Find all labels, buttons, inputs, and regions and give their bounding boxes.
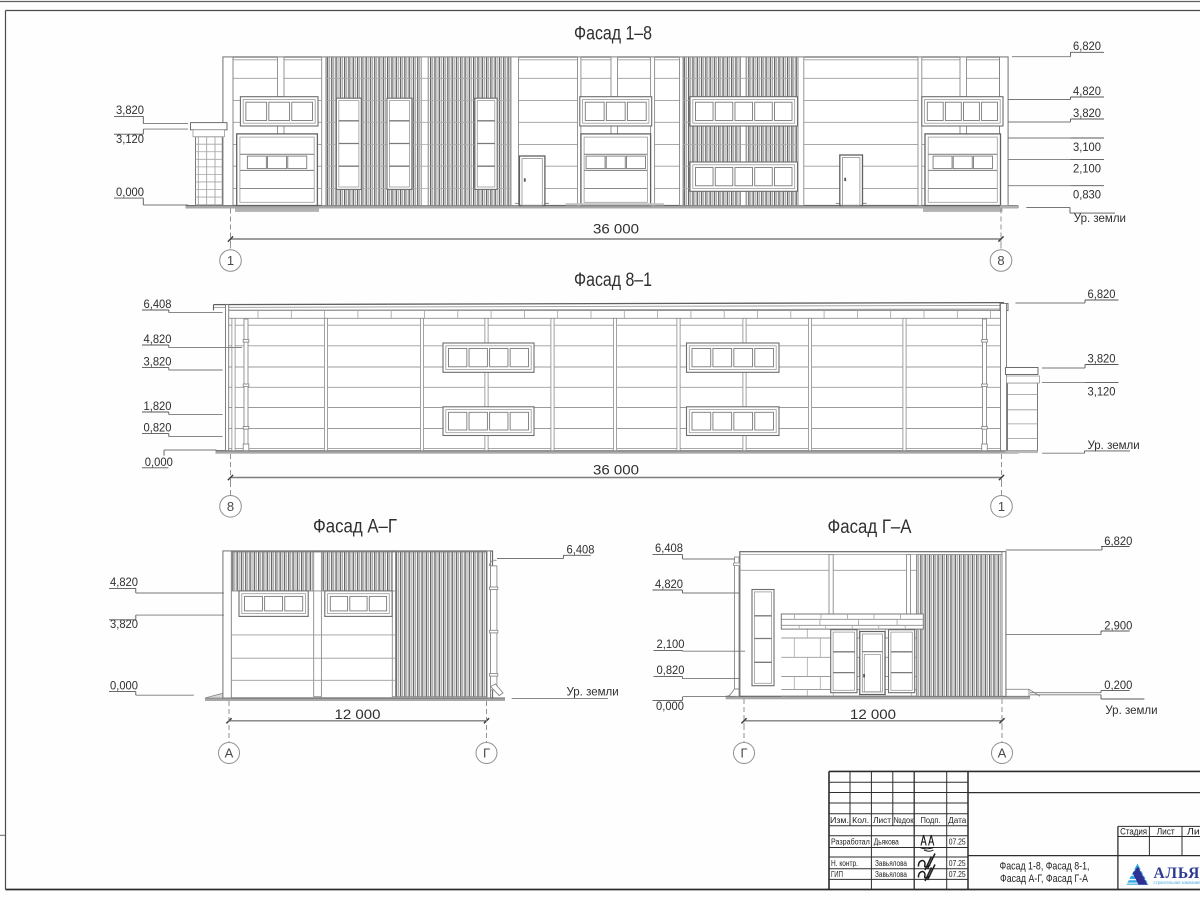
svg-text:Лис: Лис — [1187, 826, 1200, 836]
svg-text:1: 1 — [227, 253, 234, 268]
svg-text:Дата: Дата — [948, 815, 966, 825]
svg-text:Фасад 1–8: Фасад 1–8 — [574, 24, 652, 45]
svg-text:0,820: 0,820 — [144, 420, 172, 434]
svg-text:36 000: 36 000 — [593, 462, 639, 478]
svg-text:Завьялова: Завьялова — [875, 859, 907, 868]
svg-text:2,100: 2,100 — [1073, 161, 1101, 175]
svg-text:3,100: 3,100 — [1073, 140, 1101, 154]
svg-text:8: 8 — [997, 253, 1004, 268]
svg-text:4,820: 4,820 — [144, 332, 172, 346]
svg-text:Лист: Лист — [1157, 826, 1175, 836]
svg-text:А: А — [998, 746, 1007, 761]
svg-text:Ур. земли: Ур. земли — [1088, 440, 1140, 452]
svg-text:А: А — [225, 746, 234, 761]
svg-text:6,820: 6,820 — [1088, 287, 1116, 301]
svg-text:Лист: Лист — [873, 815, 891, 825]
svg-text:0,000: 0,000 — [110, 678, 138, 692]
svg-text:6,408: 6,408 — [144, 297, 172, 311]
svg-text:3,820: 3,820 — [116, 103, 144, 117]
svg-text:0,000: 0,000 — [656, 699, 684, 713]
svg-text:4,820: 4,820 — [110, 575, 138, 589]
svg-text:07.25: 07.25 — [949, 858, 966, 868]
svg-text:Г: Г — [483, 746, 490, 761]
svg-text:Дьякова: Дьякова — [874, 838, 899, 847]
svg-text:0,820: 0,820 — [657, 663, 685, 677]
svg-text:6,820: 6,820 — [1073, 39, 1101, 53]
svg-text:6,408: 6,408 — [567, 542, 595, 556]
svg-text:Разработал: Разработал — [831, 838, 870, 847]
svg-text:1: 1 — [998, 499, 1005, 514]
svg-text:8: 8 — [227, 499, 234, 514]
svg-text:1,820: 1,820 — [144, 399, 172, 413]
svg-text:Фасад 1-8, Фасад 8-1,: Фасад 1-8, Фасад 8-1, — [1000, 861, 1090, 873]
svg-text:Изм.: Изм. — [830, 815, 849, 825]
svg-text:6,408: 6,408 — [655, 541, 683, 555]
svg-text:строительная компания: строительная компания — [1154, 881, 1200, 886]
svg-text:Н. контр.: Н. контр. — [831, 859, 858, 868]
svg-text:2,900: 2,900 — [1104, 618, 1132, 632]
svg-text:4,820: 4,820 — [655, 577, 683, 591]
svg-text:Фасад А–Г: Фасад А–Г — [313, 517, 397, 538]
svg-text:Ур. земли: Ур. земли — [1074, 213, 1126, 225]
svg-text:Кол.: Кол. — [852, 815, 869, 825]
svg-text:3,120: 3,120 — [116, 132, 144, 146]
svg-text:3,120: 3,120 — [1088, 385, 1116, 399]
svg-text:3,820: 3,820 — [110, 617, 138, 631]
svg-text:АЛЬЯНС: АЛЬЯНС — [1154, 865, 1200, 882]
svg-text:07.25: 07.25 — [949, 837, 966, 847]
svg-text:36 000: 36 000 — [593, 221, 639, 237]
svg-text:0,000: 0,000 — [116, 185, 144, 199]
svg-text:3,820: 3,820 — [1073, 106, 1101, 120]
svg-text:Завьялова: Завьялова — [875, 870, 907, 879]
svg-text:0,830: 0,830 — [1073, 188, 1101, 202]
svg-text:Ур. земли: Ур. земли — [1105, 705, 1157, 717]
svg-text:ГИП: ГИП — [831, 870, 843, 879]
svg-text:12 000: 12 000 — [850, 706, 896, 722]
svg-text:12 000: 12 000 — [335, 706, 381, 722]
svg-text:Подп.: Подп. — [921, 815, 941, 825]
svg-text:2,100: 2,100 — [657, 637, 685, 651]
svg-text:3,820: 3,820 — [1088, 351, 1116, 365]
svg-text:4,820: 4,820 — [1073, 84, 1101, 98]
svg-text:Фасад Г–А: Фасад Г–А — [828, 517, 912, 538]
svg-text:№док: №док — [894, 815, 914, 825]
svg-text:6,820: 6,820 — [1104, 534, 1132, 548]
svg-text:3,820: 3,820 — [144, 354, 172, 368]
svg-text:Фасад А-Г, Фасад Г-А: Фасад А-Г, Фасад Г-А — [1000, 873, 1089, 885]
svg-text:Фасад 8–1: Фасад 8–1 — [574, 270, 652, 291]
svg-text:Стадия: Стадия — [1120, 826, 1147, 836]
svg-text:0,200: 0,200 — [1104, 678, 1132, 692]
svg-text:0,000: 0,000 — [145, 455, 173, 469]
svg-text:Г: Г — [740, 746, 747, 761]
svg-text:07.25: 07.25 — [949, 869, 966, 879]
svg-text:Ур. земли: Ур. земли — [567, 686, 619, 698]
